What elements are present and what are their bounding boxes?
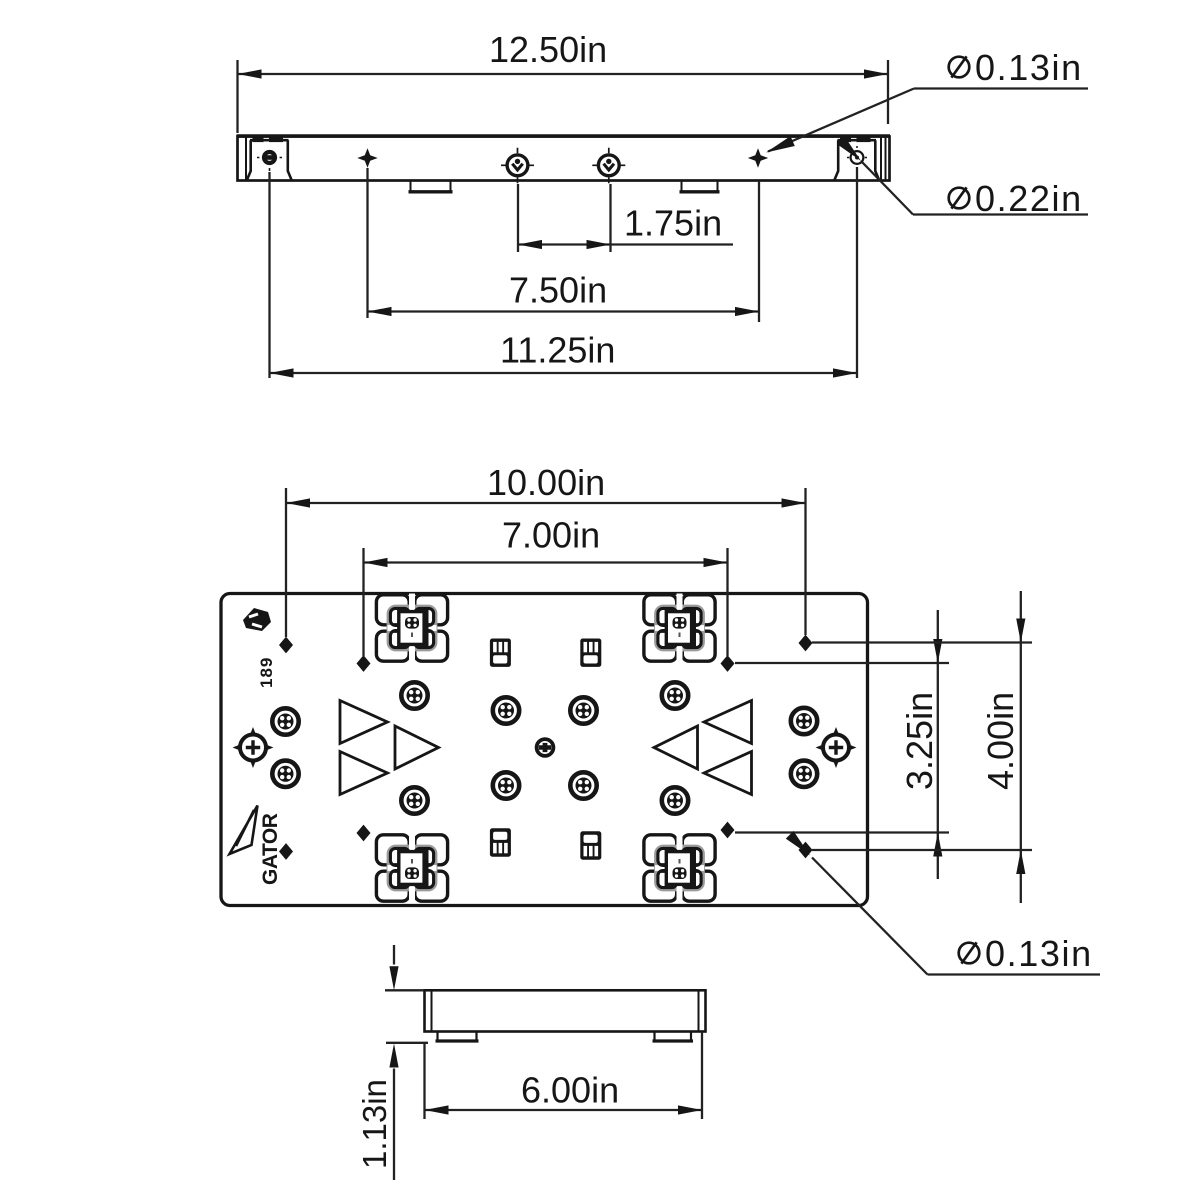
svg-text:7.50in: 7.50in: [509, 270, 607, 311]
svg-text:189: 189: [257, 657, 276, 688]
svg-text:GATOR: GATOR: [259, 813, 282, 885]
svg-text:0.22in: 0.22in: [975, 178, 1083, 219]
svg-text:11.25in: 11.25in: [500, 330, 615, 371]
svg-text:0.13in: 0.13in: [985, 933, 1093, 974]
svg-text:0.13in: 0.13in: [975, 47, 1083, 88]
svg-text:1.13in: 1.13in: [356, 1079, 393, 1169]
svg-text:4.00in: 4.00in: [980, 692, 1021, 790]
svg-text:1.75in: 1.75in: [624, 203, 722, 244]
svg-text:12.50in: 12.50in: [489, 29, 607, 70]
svg-text:3.25in: 3.25in: [899, 692, 940, 790]
svg-text:7.00in: 7.00in: [502, 515, 600, 556]
svg-text:10.00in: 10.00in: [487, 462, 605, 503]
svg-text:6.00in: 6.00in: [521, 1070, 619, 1111]
